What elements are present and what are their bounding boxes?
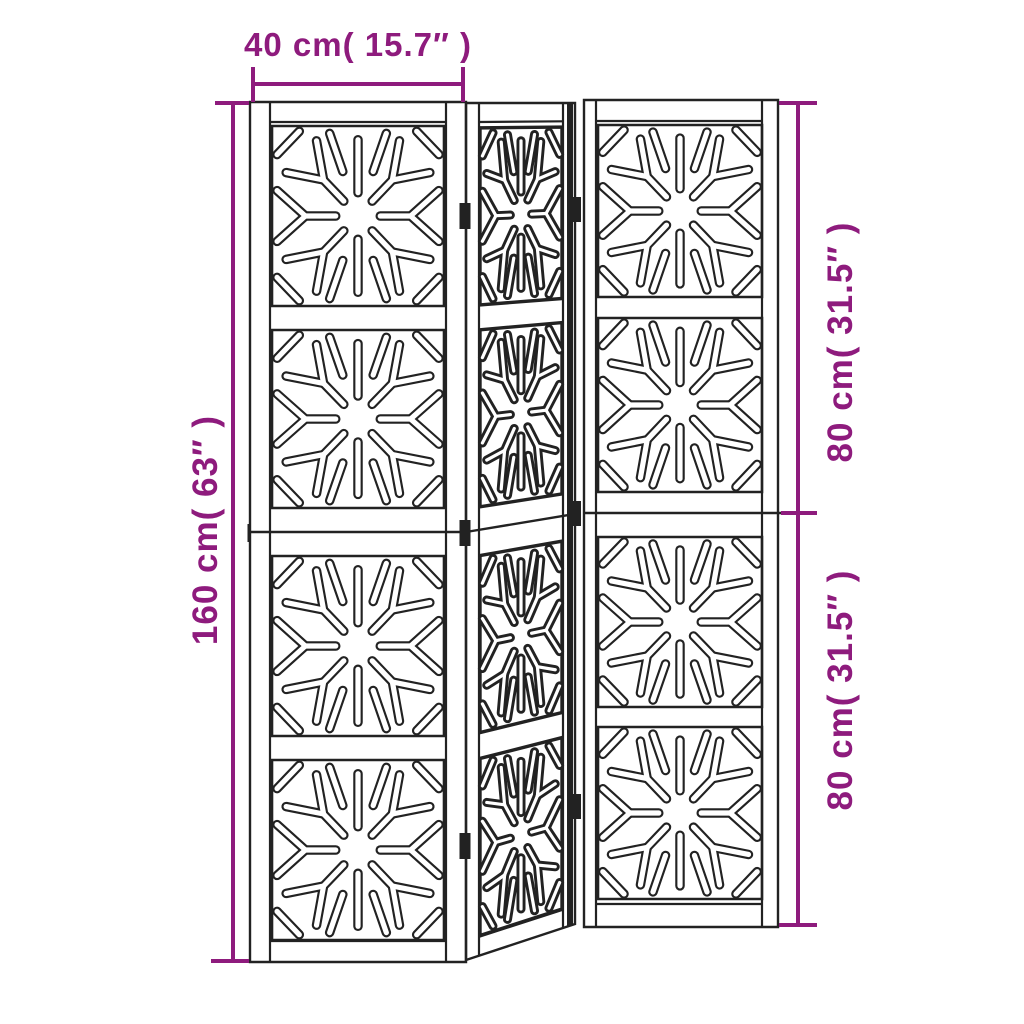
pattern-square <box>480 323 562 507</box>
hinge <box>460 520 471 546</box>
hinge <box>571 197 581 222</box>
room-divider-line-drawing <box>0 0 1024 1024</box>
panel-right <box>584 100 796 927</box>
room-divider-dimension-diagram: 40 cm( 15.7″ ) 160 cm( 63″ ) 80 cm( 31.5… <box>0 0 1024 1024</box>
pattern-square <box>272 556 444 736</box>
pattern-square <box>598 727 762 899</box>
hinge <box>460 203 471 229</box>
upper-half-dimension-label: 80 cm( 31.5″ ) <box>821 222 861 463</box>
hinge <box>460 833 471 859</box>
pattern-square <box>598 125 762 297</box>
hinge <box>571 794 581 819</box>
total-height-dimension-label: 160 cm( 63″ ) <box>186 415 226 645</box>
pattern-square <box>272 126 444 306</box>
pattern-square <box>598 318 762 492</box>
panel-middle <box>466 103 575 960</box>
pattern-square <box>272 330 444 508</box>
hinge <box>571 501 581 526</box>
pattern-square <box>480 738 562 936</box>
lower-half-dimension-label: 80 cm( 31.5″ ) <box>821 570 861 811</box>
pattern-square <box>480 127 562 305</box>
pattern-square <box>598 537 762 707</box>
pattern-square <box>480 541 562 732</box>
panel-left <box>249 102 467 962</box>
width-dimension-label: 40 cm( 15.7″ ) <box>244 26 472 64</box>
pattern-square <box>272 760 444 940</box>
